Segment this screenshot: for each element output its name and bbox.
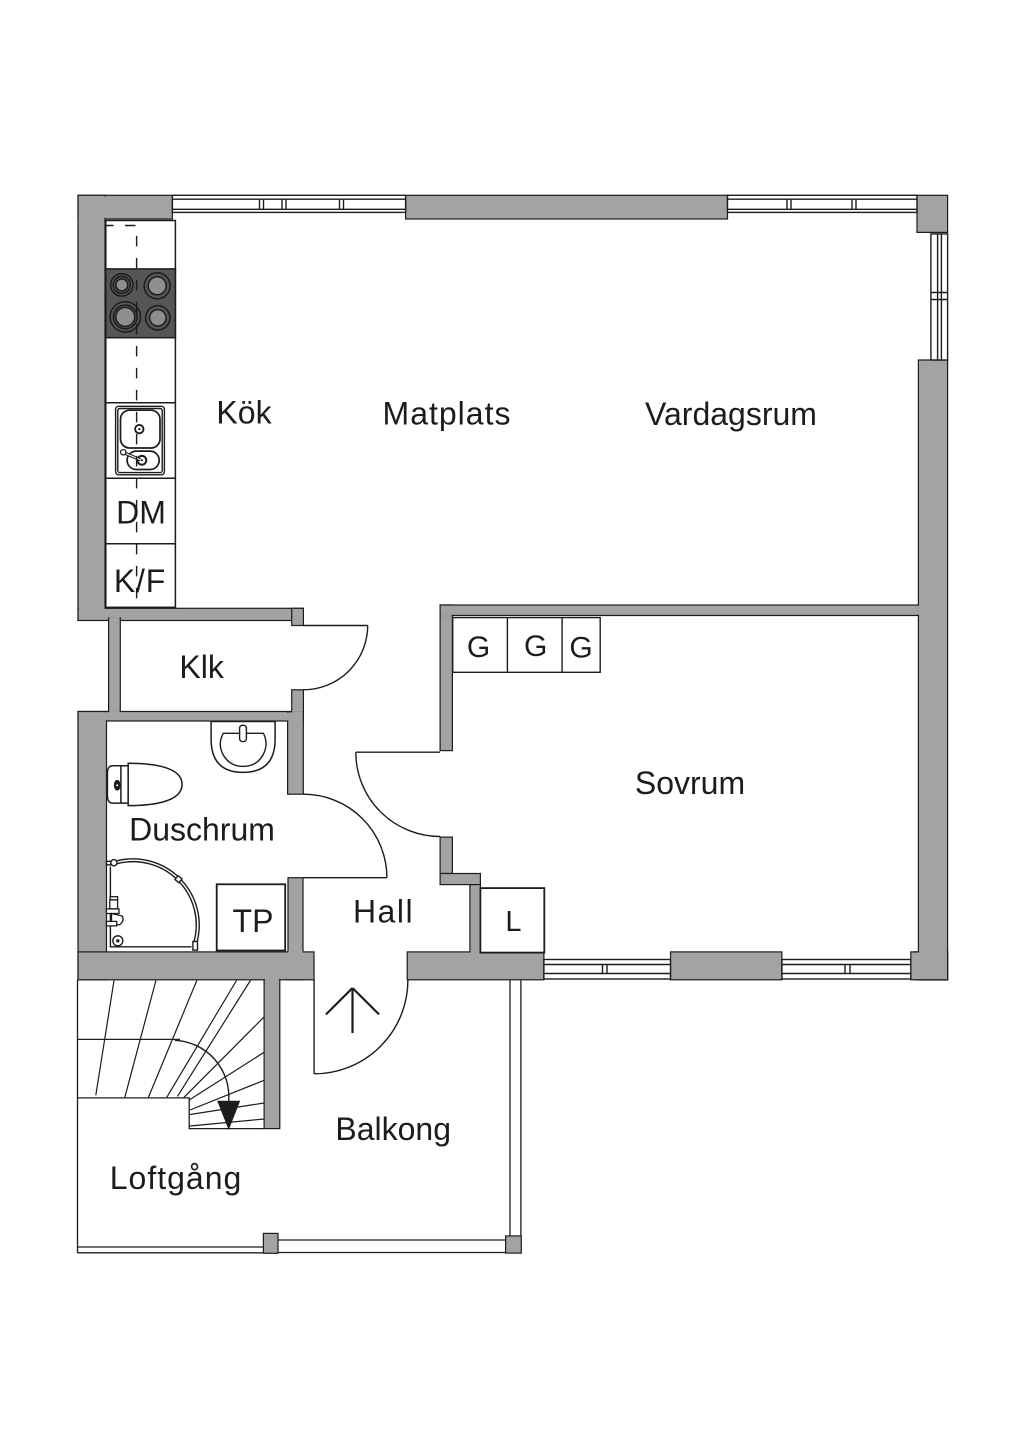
svg-text:Hall: Hall [353,894,414,930]
svg-text:G: G [569,632,592,665]
svg-text:Matplats: Matplats [383,396,512,432]
svg-text:DM: DM [116,495,166,531]
svg-text:L: L [505,906,521,938]
svg-text:Klk: Klk [179,649,224,685]
svg-text:Vardagsrum: Vardagsrum [645,396,817,432]
svg-text:TP: TP [233,903,274,939]
svg-text:Duschrum: Duschrum [129,812,275,848]
svg-text:Sovrum: Sovrum [635,765,745,801]
svg-text:G: G [524,630,547,663]
svg-text:Kök: Kök [216,395,272,431]
svg-text:G: G [467,631,490,664]
svg-text:K/F: K/F [114,563,166,599]
svg-text:Loftgång: Loftgång [110,1160,243,1196]
svg-text:Balkong: Balkong [335,1111,451,1147]
